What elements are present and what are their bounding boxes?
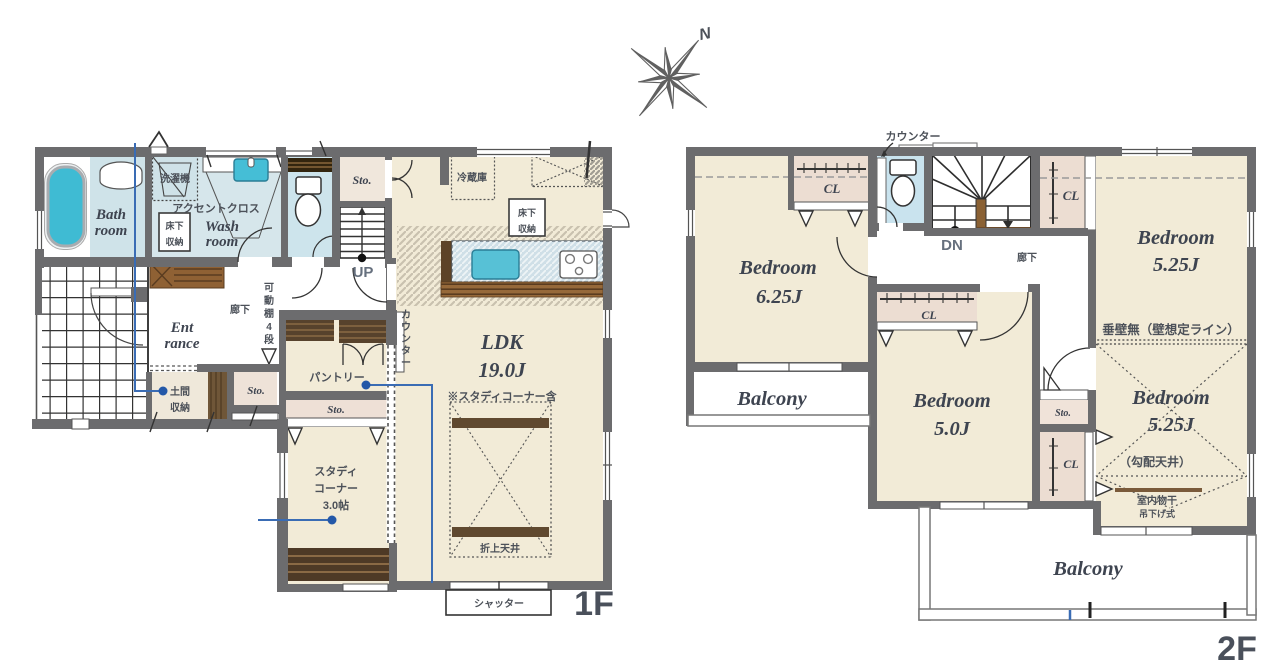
svg-text:Ent: Ent [170, 320, 194, 336]
svg-text:UP: UP [353, 264, 374, 281]
svg-text:※スタディコーナー含: ※スタディコーナー含 [447, 389, 557, 403]
svg-text:アクセントクロス: アクセントクロス [172, 202, 259, 215]
svg-text:N: N [698, 25, 713, 44]
svg-text:6.25J: 6.25J [756, 286, 803, 308]
svg-text:Sto.: Sto. [247, 385, 264, 397]
svg-text:冷蔵庫: 冷蔵庫 [457, 171, 487, 184]
svg-text:CL: CL [921, 308, 936, 322]
svg-text:Bedroom: Bedroom [912, 390, 990, 412]
svg-text:吊下げ式: 吊下げ式 [1139, 508, 1175, 519]
svg-text:Sto.: Sto. [1055, 408, 1071, 419]
svg-text:ー: ー [401, 358, 411, 369]
svg-text:DN: DN [941, 237, 963, 254]
svg-text:Sto.: Sto. [352, 173, 371, 187]
svg-text:Bedroom: Bedroom [738, 257, 816, 279]
svg-text:Balcony: Balcony [736, 388, 807, 410]
svg-text:CL: CL [824, 181, 841, 196]
svg-text:床下: 床下 [518, 207, 536, 218]
svg-text:Balcony: Balcony [1052, 558, 1123, 580]
svg-text:収納: 収納 [170, 401, 190, 414]
svg-text:段: 段 [264, 333, 274, 346]
svg-text:洗濯機: 洗濯機 [160, 172, 190, 185]
svg-text:コーナー: コーナー [314, 482, 358, 495]
svg-text:room: room [206, 234, 239, 250]
svg-text:4: 4 [266, 322, 272, 333]
svg-text:可: 可 [264, 282, 274, 294]
svg-text:シャッター: シャッター [474, 598, 524, 610]
svg-text:room: room [95, 223, 128, 239]
svg-text:1F: 1F [574, 585, 614, 623]
svg-text:スタディ: スタディ [314, 464, 357, 478]
svg-text:動: 動 [264, 294, 274, 307]
svg-text:棚: 棚 [264, 307, 274, 320]
svg-text:3.0帖: 3.0帖 [323, 498, 349, 512]
svg-text:rance: rance [165, 336, 200, 352]
svg-text:Sto.: Sto. [327, 404, 344, 416]
svg-text:LDK: LDK [480, 330, 525, 354]
svg-text:2F: 2F [1217, 630, 1257, 668]
svg-text:カ: カ [401, 309, 411, 321]
svg-text:タ: タ [401, 345, 411, 357]
svg-text:19.0J: 19.0J [478, 358, 527, 382]
svg-text:パントリー: パントリー [309, 371, 365, 384]
svg-text:Wash: Wash [205, 219, 239, 235]
svg-text:5.25J: 5.25J [1148, 414, 1195, 436]
svg-text:CL: CL [1063, 188, 1080, 203]
svg-text:床下: 床下 [165, 220, 183, 231]
svg-text:5.25J: 5.25J [1153, 254, 1200, 276]
svg-text:廊下: 廊下 [230, 303, 250, 316]
svg-text:ウ: ウ [401, 321, 411, 333]
svg-text:カウンター: カウンター [886, 130, 941, 143]
svg-text:ン: ン [401, 334, 411, 345]
svg-text:土間: 土間 [170, 385, 190, 398]
svg-text:収納: 収納 [518, 223, 536, 234]
svg-text:CL: CL [1063, 457, 1078, 471]
svg-text:折上天井: 折上天井 [480, 542, 520, 555]
svg-text:Bath: Bath [95, 207, 126, 223]
svg-text:5.0J: 5.0J [934, 418, 971, 440]
svg-text:垂壁無（壁想定ライン）: 垂壁無（壁想定ライン） [1102, 322, 1240, 337]
svg-text:室内物干: 室内物干 [1137, 494, 1177, 507]
svg-text:Bedroom: Bedroom [1136, 227, 1214, 249]
svg-text:Bedroom: Bedroom [1131, 387, 1209, 409]
svg-text:収納: 収納 [165, 236, 183, 247]
svg-text:廊下: 廊下 [1017, 251, 1037, 264]
svg-text:（勾配天井）: （勾配天井） [1119, 454, 1191, 469]
